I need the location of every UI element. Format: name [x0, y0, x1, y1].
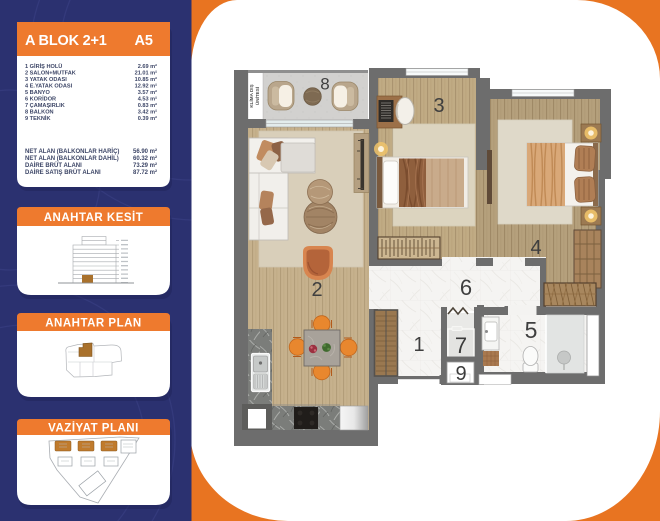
svg-text:2 SALON+MUTFAK: 2 SALON+MUTFAK — [25, 71, 76, 77]
svg-text:1: 1 — [413, 334, 424, 356]
svg-text:7: 7 — [455, 333, 467, 358]
svg-text:2.69 m²: 2.69 m² — [138, 63, 157, 70]
svg-text:0.39 m²: 0.39 m² — [138, 115, 157, 122]
svg-text:9: 9 — [455, 363, 466, 385]
svg-text:87.72 m²: 87.72 m² — [133, 169, 157, 176]
svg-text:ANAHTAR KESİT: ANAHTAR KESİT — [44, 211, 144, 224]
svg-text:6: 6 — [460, 275, 472, 300]
svg-text:21.01 m²: 21.01 m² — [135, 70, 158, 77]
svg-text:3: 3 — [433, 95, 444, 117]
svg-text:ÜNİTESİ: ÜNİTESİ — [254, 87, 260, 105]
svg-text:3 YATAK ODASI: 3 YATAK ODASI — [25, 77, 67, 83]
svg-text:12.92 m²: 12.92 m² — [135, 83, 158, 90]
svg-text:6 KORİDOR: 6 KORİDOR — [25, 96, 56, 103]
svg-text:A BLOK 2+1: A BLOK 2+1 — [25, 33, 107, 49]
svg-text:3.42 m²: 3.42 m² — [138, 109, 157, 116]
svg-text:DAİRE BRÜT ALANI: DAİRE BRÜT ALANI — [25, 162, 82, 169]
svg-text:7 ÇAMAŞIRLIK: 7 ÇAMAŞIRLIK — [25, 103, 65, 109]
svg-text:60.32 m²: 60.32 m² — [133, 155, 157, 162]
svg-text:5: 5 — [525, 317, 538, 343]
svg-text:2: 2 — [311, 279, 322, 301]
svg-text:DAİRE SATIŞ BRÜT ALANI: DAİRE SATIŞ BRÜT ALANI — [25, 169, 101, 176]
svg-text:5 BANYO: 5 BANYO — [25, 90, 51, 96]
svg-text:1 GİRİŞ HOLÜ: 1 GİRİŞ HOLÜ — [25, 63, 62, 70]
svg-text:4.53 m²: 4.53 m² — [138, 96, 157, 103]
svg-text:9 TEKNİK: 9 TEKNİK — [25, 115, 51, 122]
svg-text:8 BALKON: 8 BALKON — [25, 110, 54, 116]
svg-text:10.85 m²: 10.85 m² — [135, 76, 158, 83]
svg-text:NET ALAN (BALKONLAR DAHİL): NET ALAN (BALKONLAR DAHİL) — [25, 155, 119, 162]
svg-text:A5: A5 — [134, 33, 153, 49]
svg-text:VAZİYAT PLANI: VAZİYAT PLANI — [48, 422, 139, 435]
svg-text:0.83 m²: 0.83 m² — [138, 102, 157, 109]
svg-text:73.29 m²: 73.29 m² — [133, 162, 157, 169]
svg-text:ANAHTAR PLAN: ANAHTAR PLAN — [45, 318, 142, 330]
svg-text:56.90 m²: 56.90 m² — [133, 148, 157, 155]
svg-text:NET ALAN (BALKONLAR HARİÇ): NET ALAN (BALKONLAR HARİÇ) — [25, 148, 119, 155]
svg-text:3.57 m²: 3.57 m² — [138, 89, 157, 96]
svg-text:4: 4 — [530, 237, 541, 259]
svg-text:8: 8 — [320, 75, 329, 94]
svg-text:4 E.YATAK ODASI: 4 E.YATAK ODASI — [25, 84, 73, 90]
svg-text:KLİMA DIŞ: KLİMA DIŞ — [248, 84, 254, 107]
